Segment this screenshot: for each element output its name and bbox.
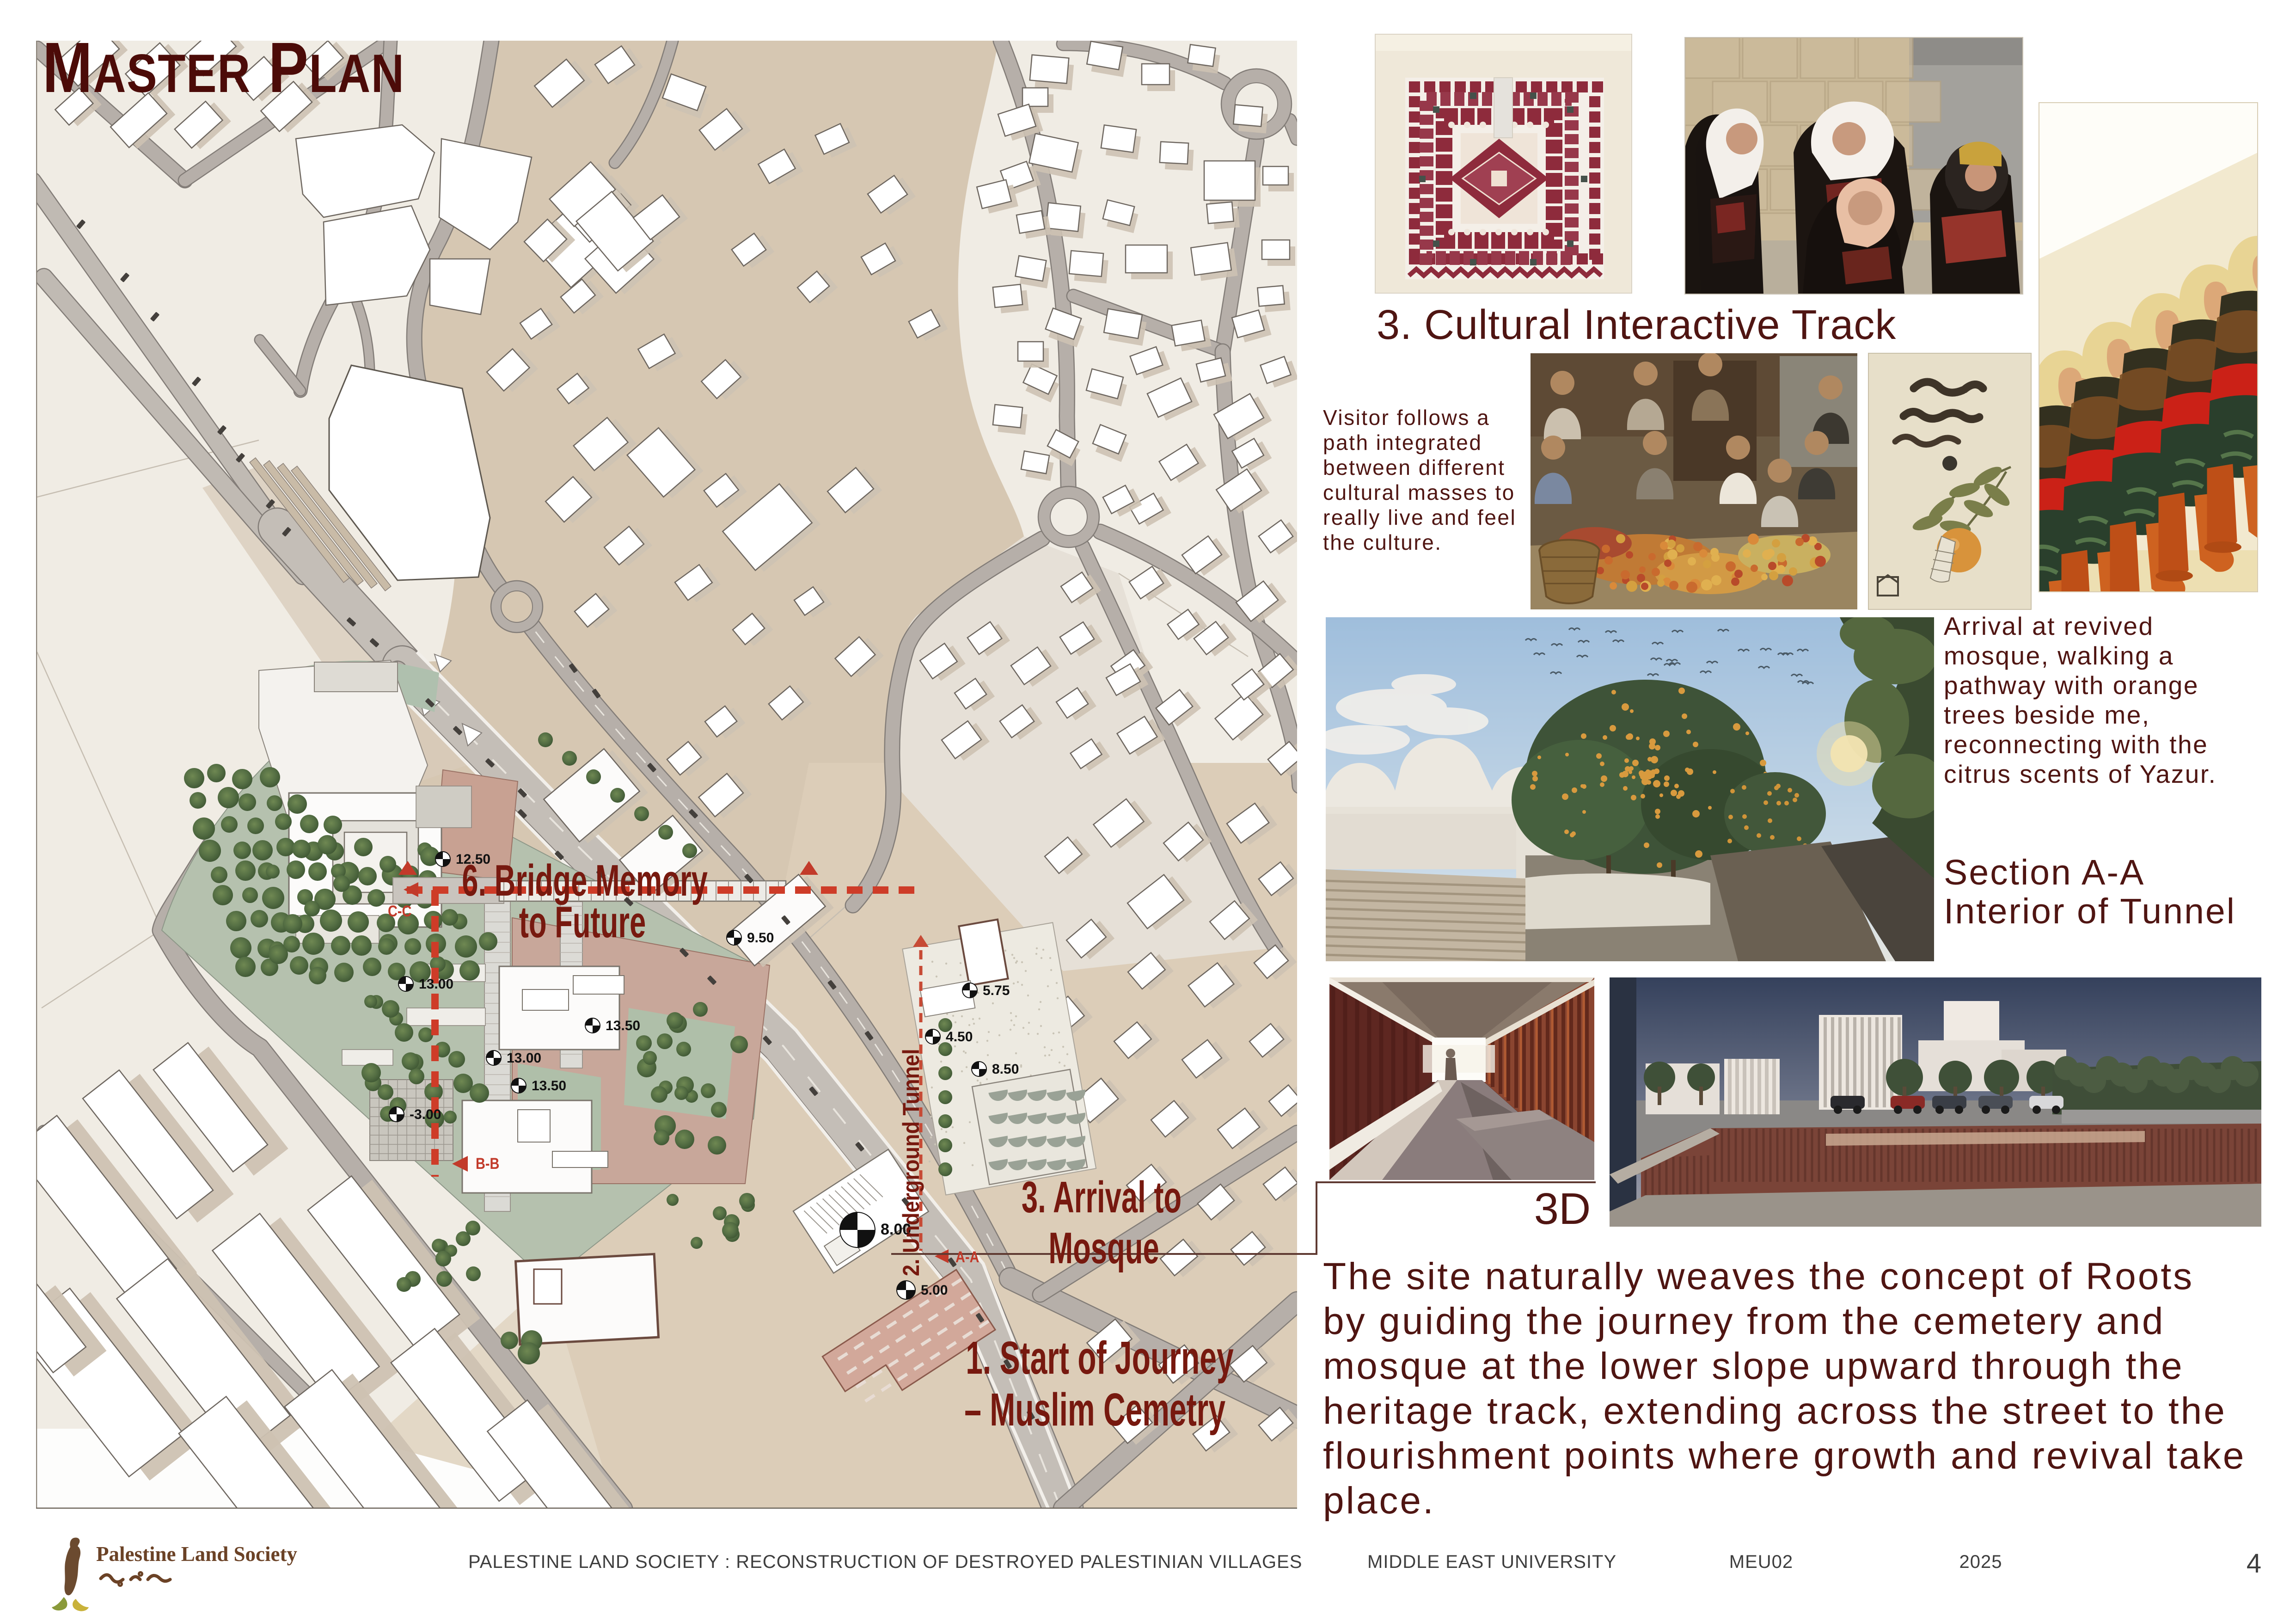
svg-text:-3.00: -3.00 <box>410 1107 441 1122</box>
svg-text:5.00: 5.00 <box>921 1283 948 1298</box>
svg-text:13.00: 13.00 <box>507 1051 541 1066</box>
svg-text:Palestine Land Society: Palestine Land Society <box>96 1542 297 1566</box>
svg-text:13.50: 13.50 <box>532 1078 566 1094</box>
svg-text:13.50: 13.50 <box>606 1018 640 1033</box>
svg-text:4.50: 4.50 <box>946 1029 973 1044</box>
svg-text:8.50: 8.50 <box>992 1062 1019 1077</box>
svg-text:5.75: 5.75 <box>983 983 1010 998</box>
svg-text:9.50: 9.50 <box>747 930 774 946</box>
svg-text:13.00: 13.00 <box>419 977 453 992</box>
